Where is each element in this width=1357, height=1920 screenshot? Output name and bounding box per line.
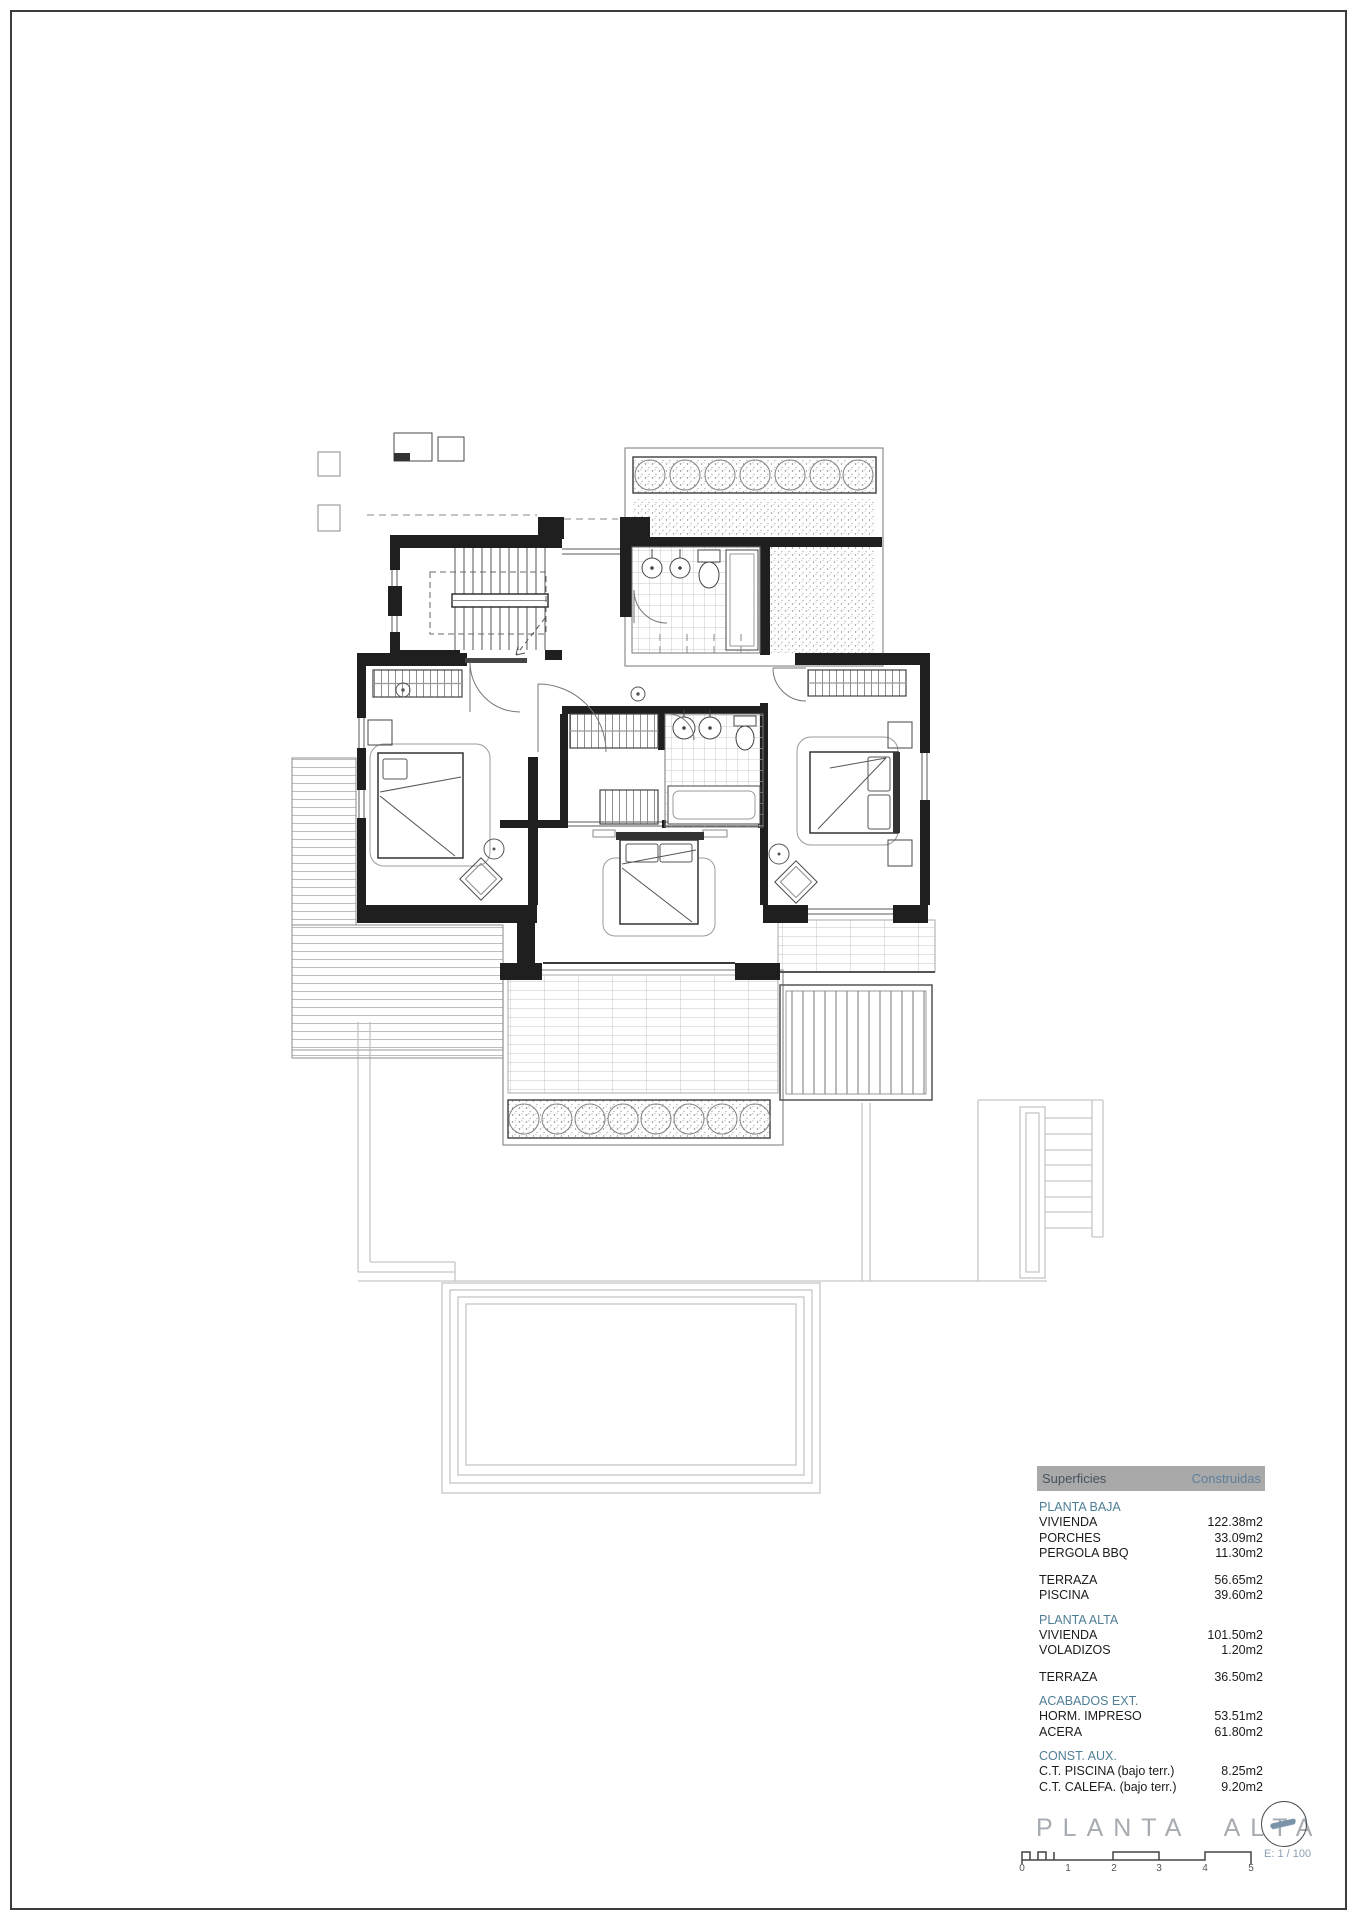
page-title: PLANTA ALTA <box>1036 1814 1274 1843</box>
table-row: HORM. IMPRESO 53.51m2 <box>1037 1709 1265 1725</box>
table-row: VIVIENDA 122.38m2 <box>1037 1515 1265 1531</box>
section-title-planta-alta: PLANTA ALTA <box>1037 1613 1265 1628</box>
section-title-const-aux: CONST. AUX. <box>1037 1749 1265 1764</box>
gravel-side <box>768 545 876 653</box>
terrace-west-strip <box>292 758 356 925</box>
graphic-scale-bar: 0 1 2 3 4 5 <box>1018 1846 1258 1876</box>
nightstand <box>368 720 392 745</box>
table-row: PERGOLA BBQ 11.30m2 <box>1037 1546 1265 1562</box>
signature-icon <box>1270 1818 1296 1829</box>
section-title-planta-baja: PLANTA BAJA <box>1037 1500 1265 1515</box>
terrace-southwest <box>292 925 503 1058</box>
architect-stamp <box>1261 1801 1307 1847</box>
table-row: C.T. PISCINA (bajo terr.) 8.25m2 <box>1037 1764 1265 1780</box>
bed-headboard <box>616 832 704 840</box>
scale-label: E: 1 / 100 <box>1264 1848 1311 1860</box>
table-col-construidas: Construidas <box>1192 1471 1261 1486</box>
bed-headboard <box>893 752 900 833</box>
nightstand <box>888 840 912 866</box>
terrace-east-tiles <box>778 920 935 972</box>
table-row: TERRAZA 56.65m2 <box>1037 1573 1265 1589</box>
bathroom-middle <box>665 710 763 827</box>
areas-table-header: Superficies Construidas <box>1037 1466 1265 1491</box>
terrace-south-tiles <box>508 975 778 1093</box>
table-row: C.T. CALEFA. (bajo terr.) 9.20m2 <box>1037 1780 1265 1796</box>
bed-icon <box>378 753 463 858</box>
table-row: PORCHES 33.09m2 <box>1037 1531 1265 1547</box>
bathtub-icon <box>668 786 760 824</box>
bed-icon <box>620 840 698 924</box>
toilet-icon <box>734 716 756 750</box>
staircase <box>430 548 548 655</box>
scale-bar-profile <box>1018 1846 1258 1866</box>
nightstand <box>888 722 912 748</box>
roof-elements <box>318 433 464 531</box>
areas-table: Superficies Construidas PLANTA BAJA VIVI… <box>1037 1466 1265 1795</box>
table-row: VOLADIZOS 1.20m2 <box>1037 1643 1265 1659</box>
table-row: ACERA 61.80m2 <box>1037 1725 1265 1741</box>
section-title-acabados-ext: ACABADOS EXT. <box>1037 1694 1265 1709</box>
table-row: TERRAZA 36.50m2 <box>1037 1670 1265 1686</box>
toilet-icon <box>698 550 720 588</box>
gravel-band <box>633 499 876 537</box>
wardrobe-icon <box>600 790 658 824</box>
shower-icon <box>726 550 758 650</box>
bedroom-right-furniture <box>769 722 912 903</box>
table-col-superficies: Superficies <box>1042 1471 1106 1486</box>
table-row: VIVIENDA 101.50m2 <box>1037 1628 1265 1644</box>
table-row: PISCINA 39.60m2 <box>1037 1588 1265 1604</box>
bedroom-master-furniture <box>603 832 715 936</box>
drawing-sheet: Superficies Construidas PLANTA BAJA VIVI… <box>0 0 1357 1920</box>
bedroom-left-furniture <box>368 720 504 900</box>
pergola-louvres <box>792 991 924 1094</box>
